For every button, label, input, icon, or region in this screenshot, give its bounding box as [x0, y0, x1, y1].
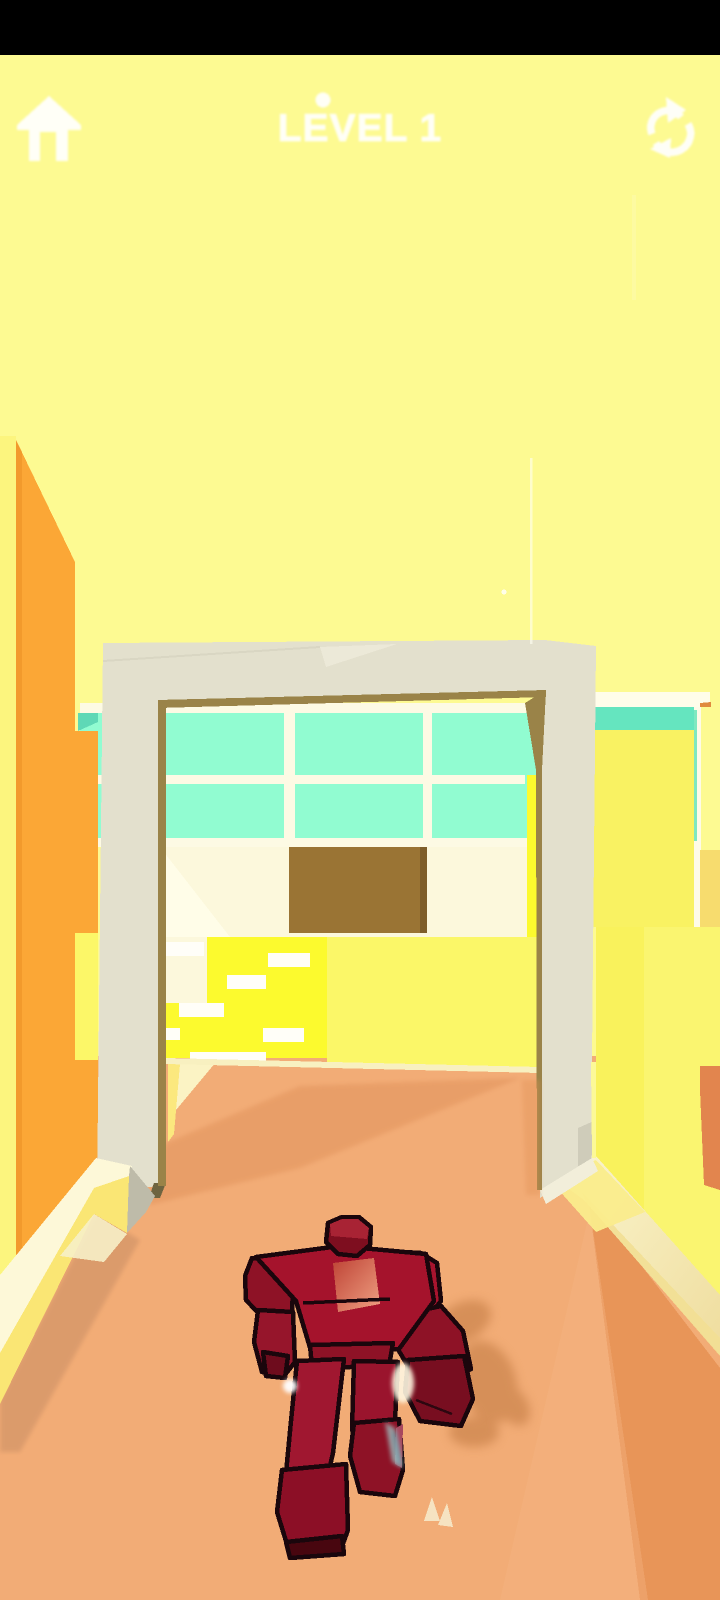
- svg-text:LEVEL 1: LEVEL 1: [278, 107, 443, 150]
